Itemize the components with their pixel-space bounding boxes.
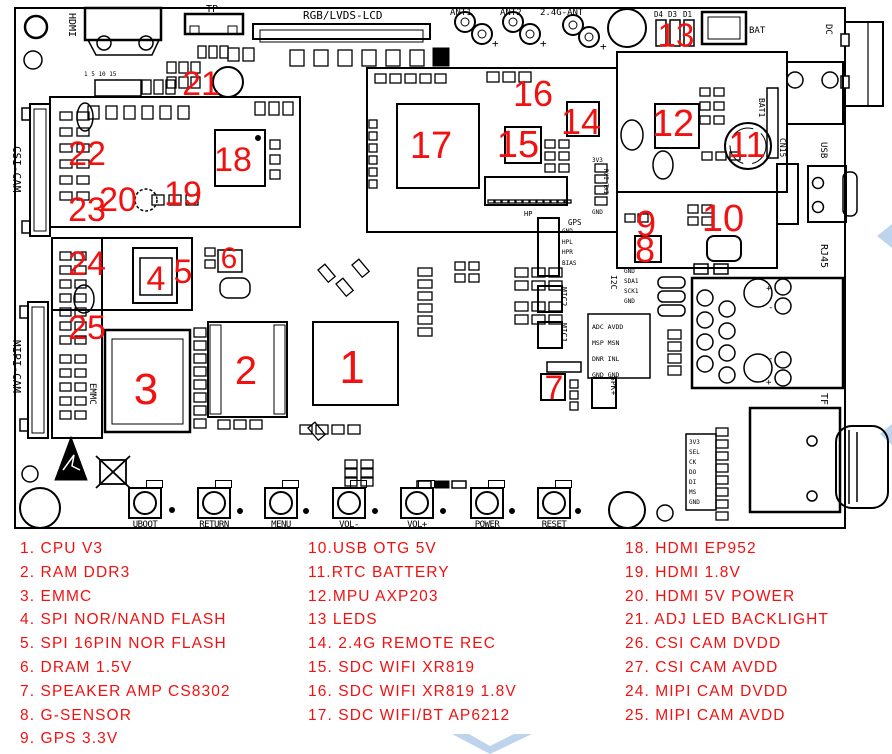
rj45-minus-mark: -	[768, 354, 773, 364]
adc-pin: DNR INL	[592, 355, 619, 363]
i2c-pin: SDA1	[624, 278, 639, 285]
board-button: UBOOT	[128, 487, 162, 519]
hp-pin: HPL	[562, 239, 573, 246]
watermark-arrow	[877, 224, 892, 248]
usb-connector	[808, 166, 857, 222]
tf-pin: CK	[689, 459, 697, 466]
gps-label: GPS	[568, 218, 582, 227]
tp-label: TP	[206, 4, 218, 15]
i2c-pin: GND	[624, 298, 635, 305]
button-label: UBOOT	[133, 520, 158, 530]
mipi-cam-label: MIPI-CAM	[10, 340, 23, 393]
legend-item: 2. RAM DDR3	[20, 564, 231, 588]
legend-item: 12.MPU AXP203	[308, 588, 517, 612]
button-pad	[264, 487, 298, 519]
tp-connector	[185, 14, 243, 34]
esd-warning-icon	[55, 437, 87, 480]
component-marker: 19	[164, 177, 202, 211]
component-marker: 5	[174, 255, 193, 289]
hp-label: HP	[524, 210, 532, 218]
board-button: RESET	[537, 487, 571, 519]
legend-item: 25. MIPI CAM AVDD	[625, 707, 829, 731]
button-pad	[332, 487, 366, 519]
ant-plus-mark: +	[600, 40, 607, 53]
legend-item: 3. EMMC	[20, 588, 231, 612]
rj45-plus-mark: +	[766, 378, 772, 388]
legend-item: 6. DRAM 1.5V	[20, 659, 231, 683]
bat-label: BAT	[749, 26, 766, 36]
wifi-shield-part	[485, 177, 567, 205]
legend-item: 8. G-SENSOR	[20, 707, 231, 731]
emmc-label: EMMC	[87, 383, 97, 405]
legend-column-1: 1. CPU V32. RAM DDR33. EMMC4. SPI NOR/NA…	[20, 540, 231, 754]
rj45-minus-mark: -	[768, 303, 773, 313]
tf-pin: GND	[689, 499, 700, 506]
legend-item: 9. GPS 3.3V	[20, 730, 231, 754]
hdmi-label: HDMI	[66, 13, 77, 37]
button-label: RETURN	[199, 520, 229, 530]
component-marker: 14	[561, 104, 601, 140]
tf-label: TF	[818, 393, 829, 405]
rj45-plus-mark: +	[766, 284, 772, 294]
i2c-header	[658, 277, 685, 316]
legend-column-2: 10.USB OTG 5V11.RTC BATTERY12.MPU AXP203…	[308, 540, 517, 730]
component-marker: 17	[410, 127, 452, 165]
legend-item: 24. MIPI CAM DVDD	[625, 683, 829, 707]
component-marker: 6	[221, 244, 238, 274]
ant2-label: ANT2	[500, 8, 522, 18]
gps-pin-3v3: 3V3	[592, 157, 603, 164]
csi-cam-label: CSI-CAM	[10, 146, 23, 193]
adc-pin: GND GND	[592, 371, 619, 379]
component-marker: 22	[68, 137, 106, 171]
tf-pin: MS	[689, 489, 697, 496]
i2c-pin: SCK1	[624, 288, 639, 295]
component-marker: 3	[134, 368, 158, 412]
legend-item: 13 LEDS	[308, 611, 517, 635]
legend-column-3: 18. HDMI EP95219. HDMI 1.8V20. HDMI 5V P…	[625, 540, 829, 730]
button-label: MENU	[271, 520, 291, 530]
hdmi-connector	[85, 8, 161, 96]
component-marker: 11	[728, 127, 765, 163]
component-marker: 24	[68, 247, 106, 281]
mic1-connector	[538, 322, 562, 348]
ant-plus-mark: +	[540, 37, 547, 50]
mic1-label: MIC1	[559, 323, 568, 342]
i2c-label: I2C	[609, 275, 618, 290]
tf-pin: DI	[689, 479, 697, 486]
component-marker: 25	[68, 311, 106, 345]
button-pad	[400, 487, 434, 519]
component-marker: 1	[339, 344, 365, 390]
legend-item: 17. SDC WIFI/BT AP6212	[308, 707, 517, 731]
hp-pin: GND	[562, 228, 573, 235]
board-button: RETURN	[197, 487, 231, 519]
button-label: VOL+	[407, 520, 427, 530]
component-marker: 4	[147, 262, 166, 296]
legend-item: 26. CSI CAM DVDD	[625, 635, 829, 659]
component-marker: 13	[658, 19, 695, 52]
usb-label: USB	[818, 142, 828, 158]
tf-pin: SEL	[689, 449, 700, 456]
ant-plus-mark: +	[492, 37, 499, 50]
wifi-module-outline	[367, 68, 617, 232]
component-marker: 23	[68, 193, 106, 227]
component-marker: 2	[235, 351, 257, 391]
button-label: VOL-	[339, 520, 359, 530]
mipi-cam-connector	[20, 302, 48, 438]
legend-item: 11.RTC BATTERY	[308, 564, 517, 588]
legend-item: 18. HDMI EP952	[625, 540, 829, 564]
ant-24g-label: 2.4G-ANT	[540, 8, 584, 18]
component-marker: 7	[545, 371, 564, 405]
button-pad	[537, 487, 571, 519]
weee-crossed-bin-icon	[96, 456, 130, 488]
component-marker: 18	[214, 143, 252, 177]
headphone-connector	[538, 218, 559, 276]
legend-item: 27. CSI CAM AVDD	[625, 659, 829, 683]
legend-item: 1. CPU V3	[20, 540, 231, 564]
legend-item: 7. SPEAKER AMP CS8302	[20, 683, 231, 707]
legend-item: 15. SDC WIFI XR819	[308, 659, 517, 683]
battery-connector	[702, 12, 746, 44]
component-marker: 21	[182, 67, 220, 101]
component-marker: 15	[497, 126, 539, 164]
button-pad	[197, 487, 231, 519]
gps-pin-uart: RXI TXI	[602, 169, 609, 195]
board-button: VOL+	[400, 487, 434, 519]
dc-label: DC	[823, 24, 833, 35]
rj45-label: RJ45	[818, 244, 829, 268]
legend-item: 4. SPI NOR/NAND FLASH	[20, 611, 231, 635]
mic2-label: MIC2	[559, 287, 568, 306]
board-button: POWER	[470, 487, 504, 519]
legend-item: 16. SDC WIFI XR819 1.8V	[308, 683, 517, 707]
button-label: POWER	[475, 520, 500, 530]
gps-pin-gnd: GND	[592, 209, 603, 216]
adc-pin: ADC AVDD	[592, 323, 623, 331]
button-pad	[470, 487, 504, 519]
ant1-label: ANT1	[450, 8, 472, 18]
button-label: RESET	[542, 520, 567, 530]
csi-cam-connector	[22, 104, 50, 236]
tf-pin: 3V3	[689, 439, 700, 446]
legend-item: 21. ADJ LED BACKLIGHT	[625, 611, 829, 635]
lcd-label: RGB/LVDS-LCD	[303, 9, 382, 22]
legend-item: 19. HDMI 1.8V	[625, 564, 829, 588]
legend-item: 20. HDMI 5V POWER	[625, 588, 829, 612]
button-pad	[128, 487, 162, 519]
lcd-connector	[253, 24, 449, 66]
component-marker: 12	[652, 105, 694, 143]
hdmi-pin-numbers: 1 5 10 15	[84, 71, 117, 78]
component-marker: 9	[636, 206, 656, 242]
legend-item: 5. SPI 16PIN NOR FLASH	[20, 635, 231, 659]
component-marker: 10	[702, 200, 744, 238]
legend-item: 10.USB OTG 5V	[308, 540, 517, 564]
pcb-annotation-diagram: HDMI TP RGB/LVDS-LCD ANT1 ANT2 2.4G-ANT …	[0, 0, 892, 754]
power-module-outline	[617, 52, 787, 192]
cn15-label: CN15	[778, 138, 787, 157]
adc-pin: MSP MSN	[592, 339, 619, 347]
bat1-label: BAT1	[757, 98, 766, 117]
tf-pin: DO	[689, 469, 697, 476]
board-button: MENU	[264, 487, 298, 519]
legend-item: 14. 2.4G REMOTE REC	[308, 635, 517, 659]
board-button: VOL-	[332, 487, 366, 519]
hp-pin: BIAS	[562, 260, 577, 267]
dc-jack	[841, 22, 883, 106]
i2c-pin: GND	[624, 268, 635, 275]
component-marker: 16	[513, 76, 553, 112]
hp-pin: HPR	[562, 249, 573, 256]
watermark-arrow	[452, 734, 532, 754]
